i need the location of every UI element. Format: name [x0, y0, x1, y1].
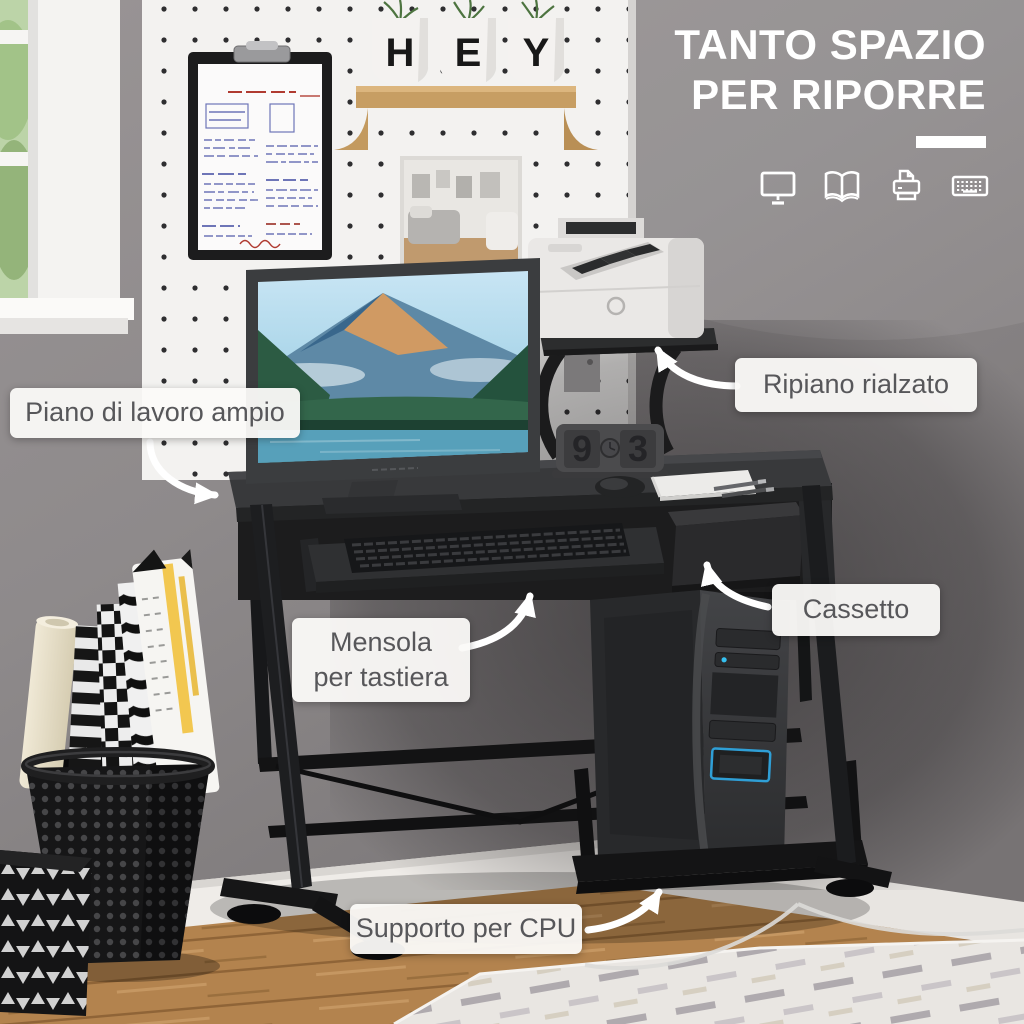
flip-clock: 9 3 — [552, 424, 668, 478]
pinned-photo — [400, 156, 522, 268]
clock-digit-right: 3 — [628, 428, 648, 469]
book-icon — [822, 166, 862, 206]
mouse — [595, 476, 645, 498]
patterned-box — [0, 850, 92, 1016]
cpu-tower — [590, 590, 790, 866]
callout-cpu-stand: Supporto per CPU — [350, 904, 582, 954]
product-photo: H E Y — [0, 0, 1024, 1024]
callout-keyboard-shelf-line2: per tastiera — [313, 660, 448, 695]
window — [0, 0, 134, 334]
feature-icons-row — [758, 166, 990, 206]
callout-raised-shelf: Ripiano rialzato — [735, 358, 977, 412]
callout-worktop: Piano di lavoro ampio — [10, 388, 300, 438]
planter-letter-y: Y — [523, 31, 550, 75]
planter-letter-h: H — [386, 31, 415, 75]
callout-drawer-label: Cassetto — [803, 592, 910, 627]
printer-icon — [886, 166, 926, 206]
callout-drawer: Cassetto — [772, 584, 940, 636]
headline-line1: TANTO SPAZIO — [674, 20, 986, 70]
callout-raised-shelf-label: Ripiano rialzato — [763, 367, 949, 402]
headline-line2: PER RIPORRE — [674, 70, 986, 120]
callout-keyboard-shelf-line1: Mensola — [330, 625, 432, 660]
callout-keyboard-shelf: Mensola per tastiera — [292, 618, 470, 702]
headline-underline — [916, 136, 986, 148]
monitor-icon — [758, 166, 798, 206]
headline: TANTO SPAZIO PER RIPORRE — [674, 20, 986, 148]
scene-svg: H E Y — [0, 0, 1024, 1024]
keyboard-icon — [950, 166, 990, 206]
clipboard-notes — [188, 41, 332, 260]
callout-cpu-stand-label: Supporto per CPU — [356, 911, 577, 946]
clock-digit-left: 9 — [572, 428, 592, 469]
planter-letter-e: E — [455, 31, 482, 75]
callout-worktop-label: Piano di lavoro ampio — [25, 395, 285, 430]
